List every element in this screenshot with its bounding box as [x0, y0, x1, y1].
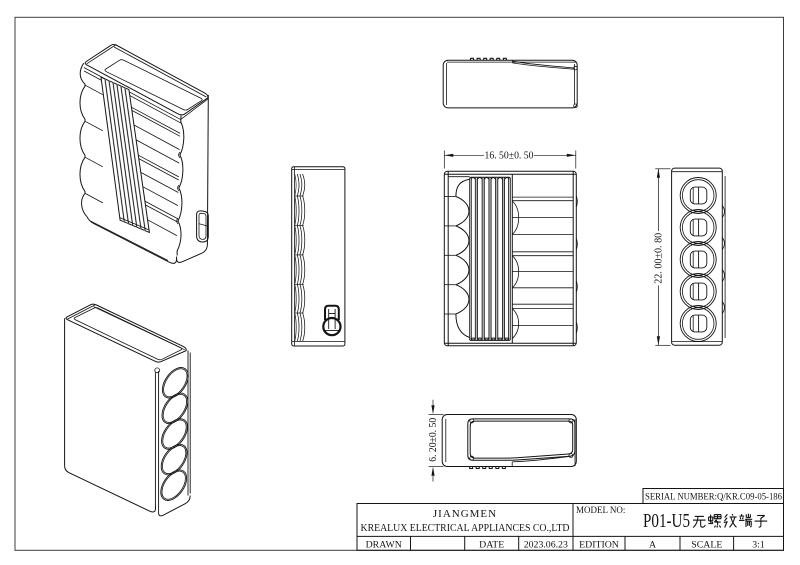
- svg-text:6. 20±0. 50: 6. 20±0. 50: [427, 417, 439, 461]
- svg-text:DATE: DATE: [479, 539, 504, 550]
- svg-text:SCALE: SCALE: [691, 539, 722, 550]
- svg-text:MODEL NO:: MODEL NO:: [576, 505, 625, 515]
- svg-text:JIANGMEN: JIANGMEN: [433, 508, 497, 520]
- svg-text:SERIAL NUMBER:Q/KR.C09-05-186: SERIAL NUMBER:Q/KR.C09-05-186: [645, 491, 782, 502]
- svg-text:2023.06.23: 2023.06.23: [524, 539, 568, 550]
- svg-text:3:1: 3:1: [752, 539, 765, 550]
- svg-text:A: A: [649, 539, 656, 550]
- svg-text:16. 50±0. 50: 16. 50±0. 50: [485, 150, 534, 162]
- svg-text:EDITION: EDITION: [579, 539, 619, 550]
- svg-text:22. 00±0. 80: 22. 00±0. 80: [653, 232, 665, 283]
- svg-text:KREALUX ELECTRICAL APPLIANCES: KREALUX ELECTRICAL APPLIANCES CO.,LTD: [361, 522, 570, 534]
- svg-text:P01-U5: P01-U5: [643, 510, 690, 532]
- svg-text:DRAWN: DRAWN: [366, 539, 402, 550]
